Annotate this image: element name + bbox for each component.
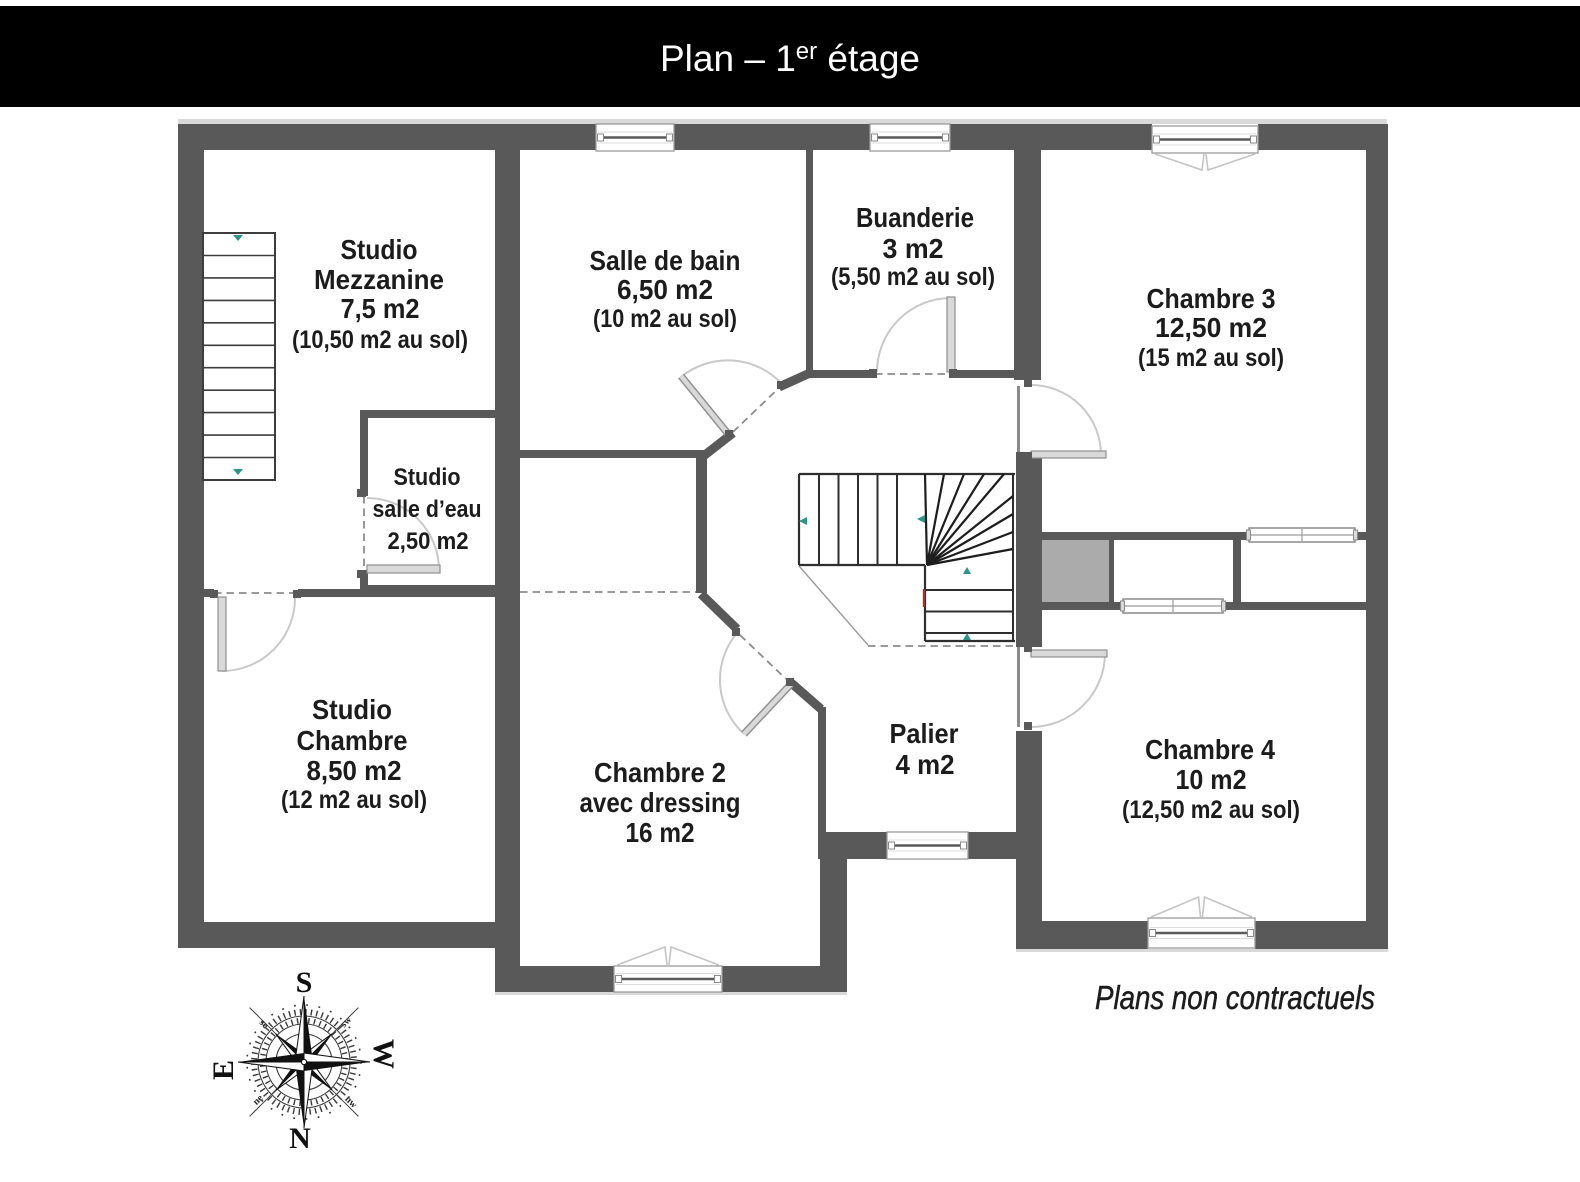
svg-text:Studio: Studio <box>341 234 418 265</box>
svg-text:Studio: Studio <box>394 464 461 491</box>
svg-text:(12 m2 au sol): (12 m2 au sol) <box>281 786 427 814</box>
svg-text:N: N <box>289 1122 311 1155</box>
svg-text:E: E <box>207 1060 240 1080</box>
svg-text:(15 m2 au sol): (15 m2 au sol) <box>1138 344 1284 372</box>
svg-text:2,50 m2: 2,50 m2 <box>388 528 469 555</box>
svg-text:Chambre 2: Chambre 2 <box>594 757 726 788</box>
svg-text:Chambre 4: Chambre 4 <box>1145 734 1275 765</box>
svg-text:10 m2: 10 m2 <box>1176 764 1247 795</box>
svg-text:W: W <box>367 1039 400 1069</box>
svg-text:Buanderie: Buanderie <box>856 202 974 233</box>
svg-text:salle d’eau: salle d’eau <box>373 496 482 523</box>
svg-text:Plan – 1er étage: Plan – 1er étage <box>660 38 920 79</box>
svg-text:avec dressing: avec dressing <box>580 787 741 818</box>
svg-text:(10,50 m2 au sol): (10,50 m2 au sol) <box>292 326 468 354</box>
svg-text:(5,50 m2 au sol): (5,50 m2 au sol) <box>831 263 995 291</box>
svg-text:3 m2: 3 m2 <box>883 233 944 264</box>
svg-text:Palier: Palier <box>890 718 959 749</box>
svg-text:8,50 m2: 8,50 m2 <box>307 755 402 786</box>
svg-text:Studio: Studio <box>312 694 392 725</box>
svg-text:7,5 m2: 7,5 m2 <box>341 293 420 324</box>
svg-text:Mezzanine: Mezzanine <box>314 264 444 295</box>
svg-text:12,50 m2: 12,50 m2 <box>1155 312 1267 343</box>
svg-text:16 m2: 16 m2 <box>626 817 695 848</box>
svg-text:4 m2: 4 m2 <box>896 749 955 780</box>
svg-text:(10 m2 au sol): (10 m2 au sol) <box>593 305 737 333</box>
svg-text:Chambre 3: Chambre 3 <box>1147 283 1276 314</box>
svg-text:6,50 m2: 6,50 m2 <box>617 274 713 305</box>
svg-text:Chambre: Chambre <box>297 725 408 756</box>
svg-text:Plans non contractuels: Plans non contractuels <box>1095 979 1375 1016</box>
svg-text:Salle de bain: Salle de bain <box>590 245 741 276</box>
svg-text:(12,50 m2 au sol): (12,50 m2 au sol) <box>1122 796 1300 824</box>
svg-text:S: S <box>296 966 313 999</box>
